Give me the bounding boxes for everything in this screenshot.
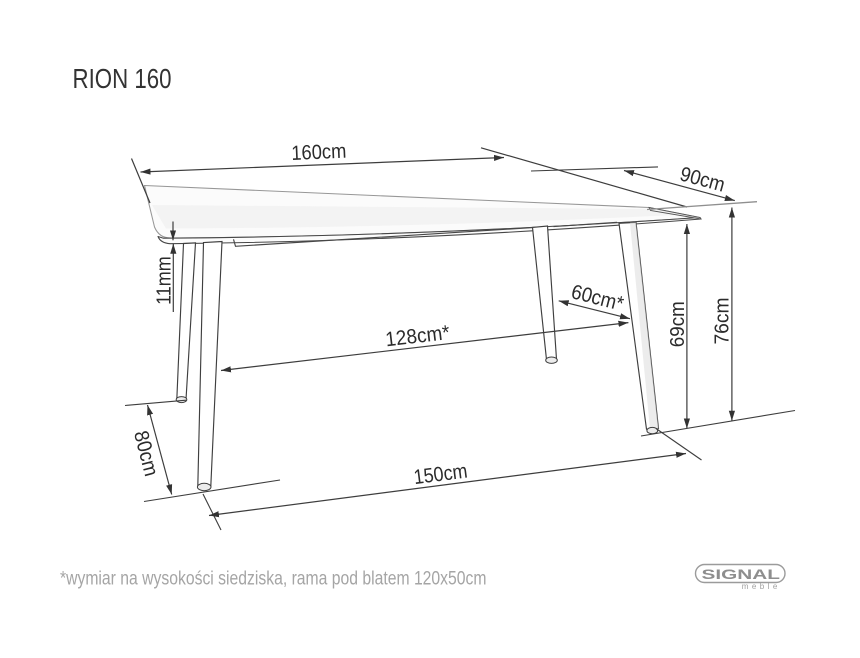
svg-text:*wymiar na wysokości siedziska: *wymiar na wysokości siedziska, rama pod… bbox=[60, 569, 487, 590]
svg-text:160cm: 160cm bbox=[291, 140, 347, 165]
svg-text:76cm: 76cm bbox=[710, 298, 733, 345]
svg-text:meble: meble bbox=[742, 582, 778, 591]
svg-text:69cm: 69cm bbox=[666, 301, 689, 347]
svg-text:RION 160: RION 160 bbox=[73, 63, 172, 94]
svg-text:11mm: 11mm bbox=[153, 256, 176, 305]
svg-text:SIGNAL: SIGNAL bbox=[702, 567, 781, 582]
